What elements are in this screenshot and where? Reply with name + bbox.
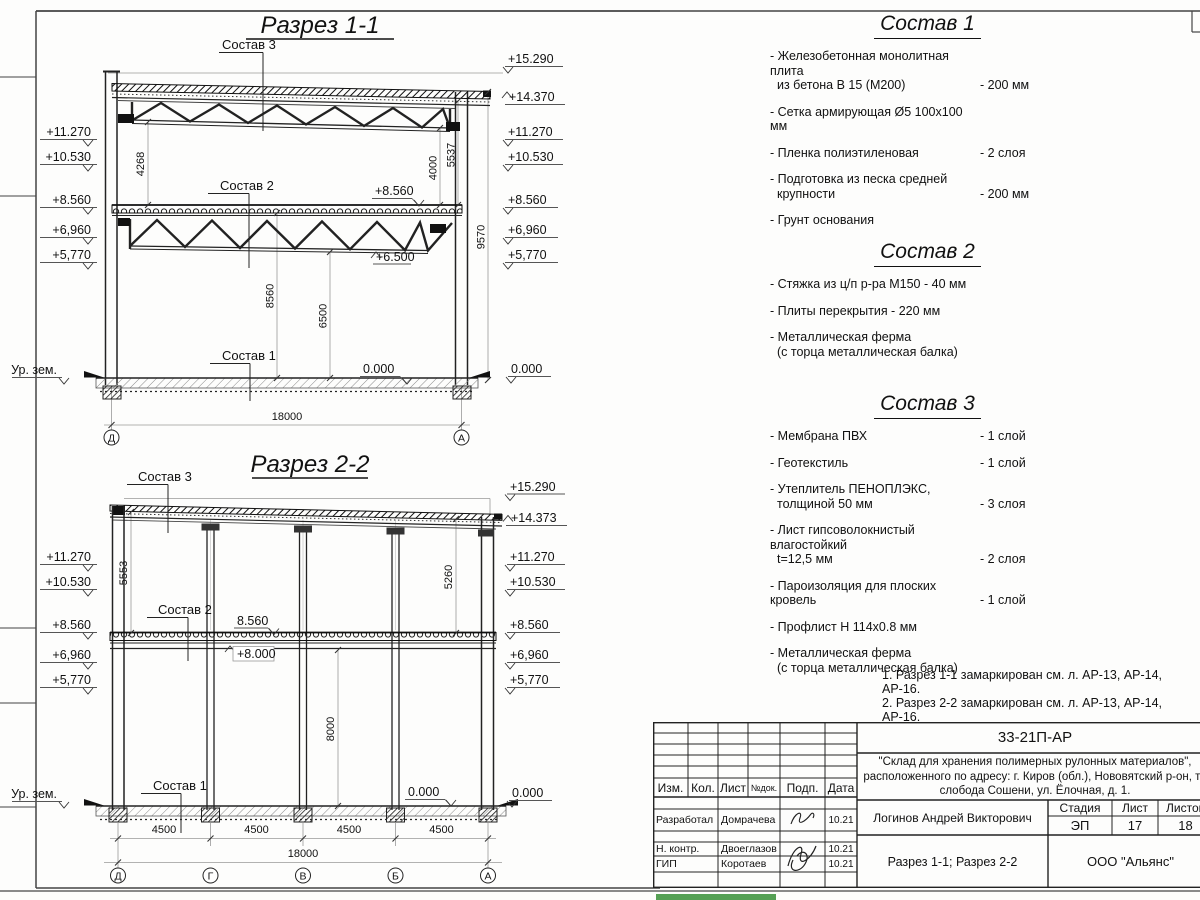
list-item: - Сетка армирующая Ø5 100x100 мм: [770, 105, 1085, 134]
sheets-label: Листов: [1158, 800, 1200, 816]
dim-4000: 4000: [428, 156, 440, 180]
dim-4500: 4500: [337, 824, 361, 836]
col-list: Лист: [718, 778, 748, 797]
dim-18000: 18000: [288, 848, 319, 860]
row-role: ГИП: [656, 856, 718, 872]
row-name: Коротаев: [721, 856, 780, 872]
svg-text:+5,770: +5,770: [508, 248, 547, 262]
svg-text:0.000: 0.000: [408, 785, 439, 799]
svg-text:+8.000: +8.000: [237, 647, 276, 661]
floor-slab: [110, 633, 496, 649]
footing: [453, 386, 471, 399]
dim-5537: 5537: [446, 143, 458, 167]
svg-text:+8.560: +8.560: [510, 618, 549, 632]
list-item: - Мембрана ПВХ - 1 слой: [770, 429, 1085, 444]
axis-label: А: [458, 433, 465, 445]
svg-text:+6,960: +6,960: [510, 648, 549, 662]
inner-level-labels: +8.560 +6.500 0.000: [360, 184, 424, 384]
dim-5553: 5553: [118, 561, 130, 585]
title-block: Изм. Кол. Лист №док. Подп. Дата Разработ…: [653, 722, 1200, 888]
roof-edge-block: [112, 506, 125, 515]
col-data: Дата: [825, 778, 857, 797]
ground: [84, 371, 490, 399]
dim-4500: 4500: [429, 824, 453, 836]
list-item: - Утеплитель ПЕНОПЛЭКС,толщиной 50 мм - …: [770, 482, 1085, 511]
svg-text:+8.560: +8.560: [375, 184, 414, 198]
svg-text:0.000: 0.000: [511, 362, 542, 376]
svg-text:Состав 3: Состав 3: [138, 469, 192, 484]
svg-text:+5,770: +5,770: [52, 248, 91, 262]
signature: [791, 813, 814, 824]
floor-slab: [112, 205, 462, 216]
roof: [112, 84, 491, 109]
svg-text:+15.290: +15.290: [508, 52, 554, 66]
svg-text:+11.270: +11.270: [508, 125, 553, 139]
row-name: Домрачева: [721, 809, 780, 831]
svg-text:+14.373: +14.373: [511, 511, 557, 525]
list-item: - Пленка полиэтиленовая - 2 слоя: [770, 146, 1085, 161]
roof: [110, 505, 502, 529]
ground-level-label: Ур. зем.: [11, 363, 57, 377]
axis-bubbles: Д Г В Б А: [111, 868, 496, 883]
svg-text:А: А: [484, 871, 491, 883]
list-item: - Металлическая ферма(с торца металличес…: [770, 330, 1085, 359]
row-name: Двоеглазов: [721, 842, 780, 856]
stage-value: ЭП: [1048, 816, 1112, 835]
note-line: 2. Разрез 2-2 замаркирован см. л. АР-13,…: [882, 696, 1200, 724]
sheet-number: 17: [1112, 816, 1158, 835]
svg-text:+10.530: +10.530: [508, 150, 554, 164]
svg-text:+6,960: +6,960: [52, 648, 91, 662]
dim-4268: 4268: [135, 152, 147, 176]
svg-text:8.560: 8.560: [237, 614, 268, 628]
list-item: - Железобетонная монолитная плитаиз бето…: [770, 49, 1085, 93]
list-item: - Пароизоляция для плоских кровель - 1 с…: [770, 579, 1085, 608]
wall: [103, 72, 468, 386]
elevation-marks-left: +11.270 +10.530 +8.560 +6,960 +5,770 Ур.…: [11, 550, 97, 808]
svg-text:+11.270: +11.270: [46, 550, 91, 564]
footing: [103, 386, 121, 399]
svg-text:Б: Б: [392, 871, 399, 883]
svg-text:+11.270: +11.270: [510, 550, 555, 564]
company-name: ООО "Альянс": [1048, 835, 1200, 888]
section-title: Разрез 2-2: [251, 451, 370, 478]
composition-list-2: Состав 2 - Стяжка из ц/п р-ра М150 - 40 …: [770, 240, 1085, 371]
section-2-2: Разрез 2-2: [11, 451, 567, 883]
row-role: Н. контр.: [656, 842, 718, 856]
dim-6500: 6500: [318, 304, 330, 328]
drawing-canvas: Разрез 1-1: [0, 0, 660, 900]
page-bottom-line: [0, 890, 1200, 892]
list-item: - Лист гипсоволокнистый влагостойкийt=12…: [770, 523, 1085, 567]
list-item: - Геотекстиль - 1 слой: [770, 456, 1085, 471]
stage-label: Стадия: [1048, 800, 1112, 816]
drawing-title: Разрез 1-1; Разрез 2-2: [857, 835, 1048, 888]
list-item: - Подготовка из песка среднейкрупности -…: [770, 172, 1085, 201]
project-description: "Склад для хранения полимерных рулонных …: [857, 755, 1200, 799]
roof-edge-block: [494, 514, 502, 520]
composition-list-1: Состав 1 - Железобетонная монолитная пли…: [770, 12, 1085, 240]
ground-level-label: Ур. зем.: [11, 787, 57, 801]
axis-bubbles: Д А: [104, 430, 469, 445]
svg-text:Г: Г: [208, 871, 214, 883]
composition-list-3: Состав 3 - Мембрана ПВХ - 1 слой - Геоте…: [770, 392, 1085, 687]
svg-text:+6,960: +6,960: [508, 223, 547, 237]
svg-text:0.000: 0.000: [512, 786, 543, 800]
notes: 1. Разрез 1-1 замаркирован см. л. АР-13,…: [882, 668, 1200, 724]
status-green-bar: [656, 894, 776, 900]
dim-8000: 8000: [325, 717, 337, 741]
svg-text:Состав 1: Состав 1: [222, 348, 276, 363]
roof-truss: [118, 102, 460, 132]
elevation-marks-right: +15.290 +14.370 +11.270 +10.530 +8.560 +…: [502, 52, 565, 383]
doc-number: 33-21П-АР: [857, 722, 1200, 753]
elevation-marks-left: +11.270 +10.530 +8.560 +6,960 +5,770 Ур.…: [11, 125, 97, 384]
svg-text:+11.270: +11.270: [46, 125, 91, 139]
svg-text:Состав 1: Состав 1: [153, 778, 207, 793]
dim-5260: 5260: [443, 565, 455, 589]
list-item: - Плиты перекрытия - 220 мм: [770, 304, 1085, 319]
list-item: - Профлист Н 114х0.8 мм: [770, 620, 1085, 635]
fold-mark: [0, 77, 36, 807]
svg-text:Д: Д: [114, 871, 121, 883]
axis-label: Д: [108, 433, 115, 445]
svg-text:0.000: 0.000: [363, 362, 394, 376]
dim-4500: 4500: [244, 824, 268, 836]
composition-leaders: Состав 3 Состав 2 Состав 1: [127, 469, 212, 833]
svg-text:+10.530: +10.530: [45, 575, 91, 589]
sheet-frame: [0, 11, 660, 888]
svg-text:+6.500: +6.500: [376, 250, 415, 264]
ground: [84, 799, 518, 822]
row-date: 10.21: [825, 842, 857, 856]
signature: [788, 846, 816, 870]
col-podp: Подп.: [780, 778, 825, 797]
svg-text:Состав 2: Состав 2: [158, 602, 212, 617]
section-1-1: Разрез 1-1: [11, 12, 565, 445]
list-item: - Грунт основания: [770, 213, 1085, 228]
svg-text:+10.530: +10.530: [510, 575, 556, 589]
svg-text:В: В: [299, 871, 306, 883]
row-role: Разработал: [656, 809, 718, 831]
developer-name: Логинов Андрей Викторович: [857, 800, 1048, 835]
col-ndok: №док.: [748, 778, 780, 797]
list-item: - Стяжка из ц/п р-ра М150 - 40 мм: [770, 277, 1085, 292]
note-line: 1. Разрез 1-1 замаркирован см. л. АР-13,…: [882, 668, 1200, 696]
dim-4500: 4500: [152, 824, 176, 836]
dimensions: [109, 89, 492, 428]
floor-truss: [118, 218, 452, 254]
sheets-total: 18: [1158, 816, 1200, 835]
svg-text:+10.530: +10.530: [45, 150, 91, 164]
svg-text:+5,770: +5,770: [510, 673, 549, 687]
elevation-marks-right: +15.290 +14.373 +11.270 +10.530 +8.560 +…: [503, 480, 567, 807]
sheet-label: Лист: [1112, 800, 1158, 816]
composition-title: Состав 1: [770, 12, 1085, 39]
col-izm: Изм.: [653, 778, 688, 797]
svg-text:+8.560: +8.560: [52, 618, 91, 632]
composition-title: Состав 3: [770, 392, 1085, 419]
col-kol: Кол.: [688, 778, 718, 797]
svg-text:+15.290: +15.290: [510, 480, 556, 494]
composition-title: Состав 2: [770, 240, 1085, 267]
row-date: 10.21: [825, 809, 857, 831]
row-date: 10.21: [825, 856, 857, 872]
svg-text:+6,960: +6,960: [52, 223, 91, 237]
svg-text:+14.370: +14.370: [509, 90, 555, 104]
dim-8560: 8560: [265, 284, 277, 308]
svg-text:+8.560: +8.560: [52, 193, 91, 207]
dim-9570: 9570: [476, 225, 488, 249]
svg-text:+8.560: +8.560: [508, 193, 547, 207]
svg-text:Состав 2: Состав 2: [220, 178, 274, 193]
corner-stamp-box: [1192, 11, 1200, 32]
svg-text:+5,770: +5,770: [52, 673, 91, 687]
dim-18000: 18000: [272, 411, 303, 423]
